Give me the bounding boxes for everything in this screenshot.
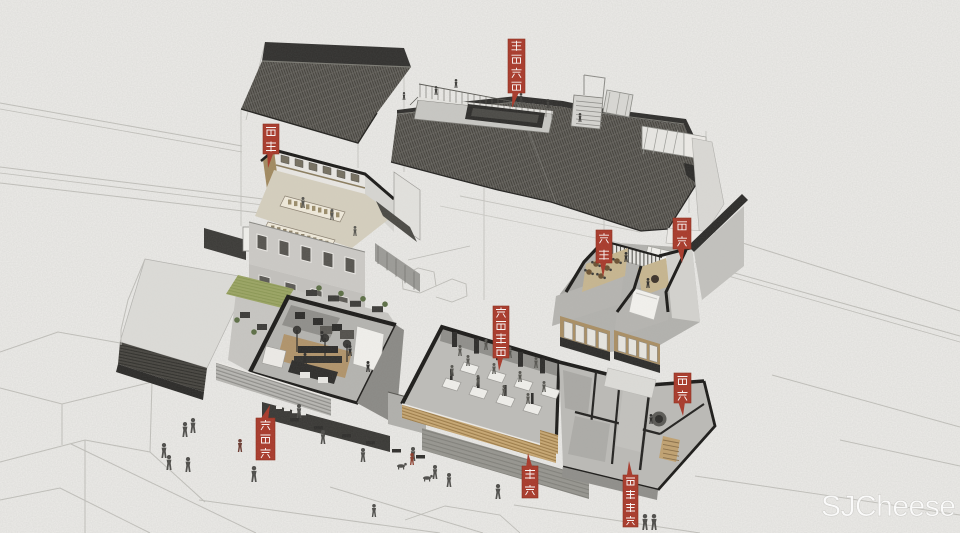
svg-text:SJCheese: SJCheese bbox=[821, 490, 955, 523]
